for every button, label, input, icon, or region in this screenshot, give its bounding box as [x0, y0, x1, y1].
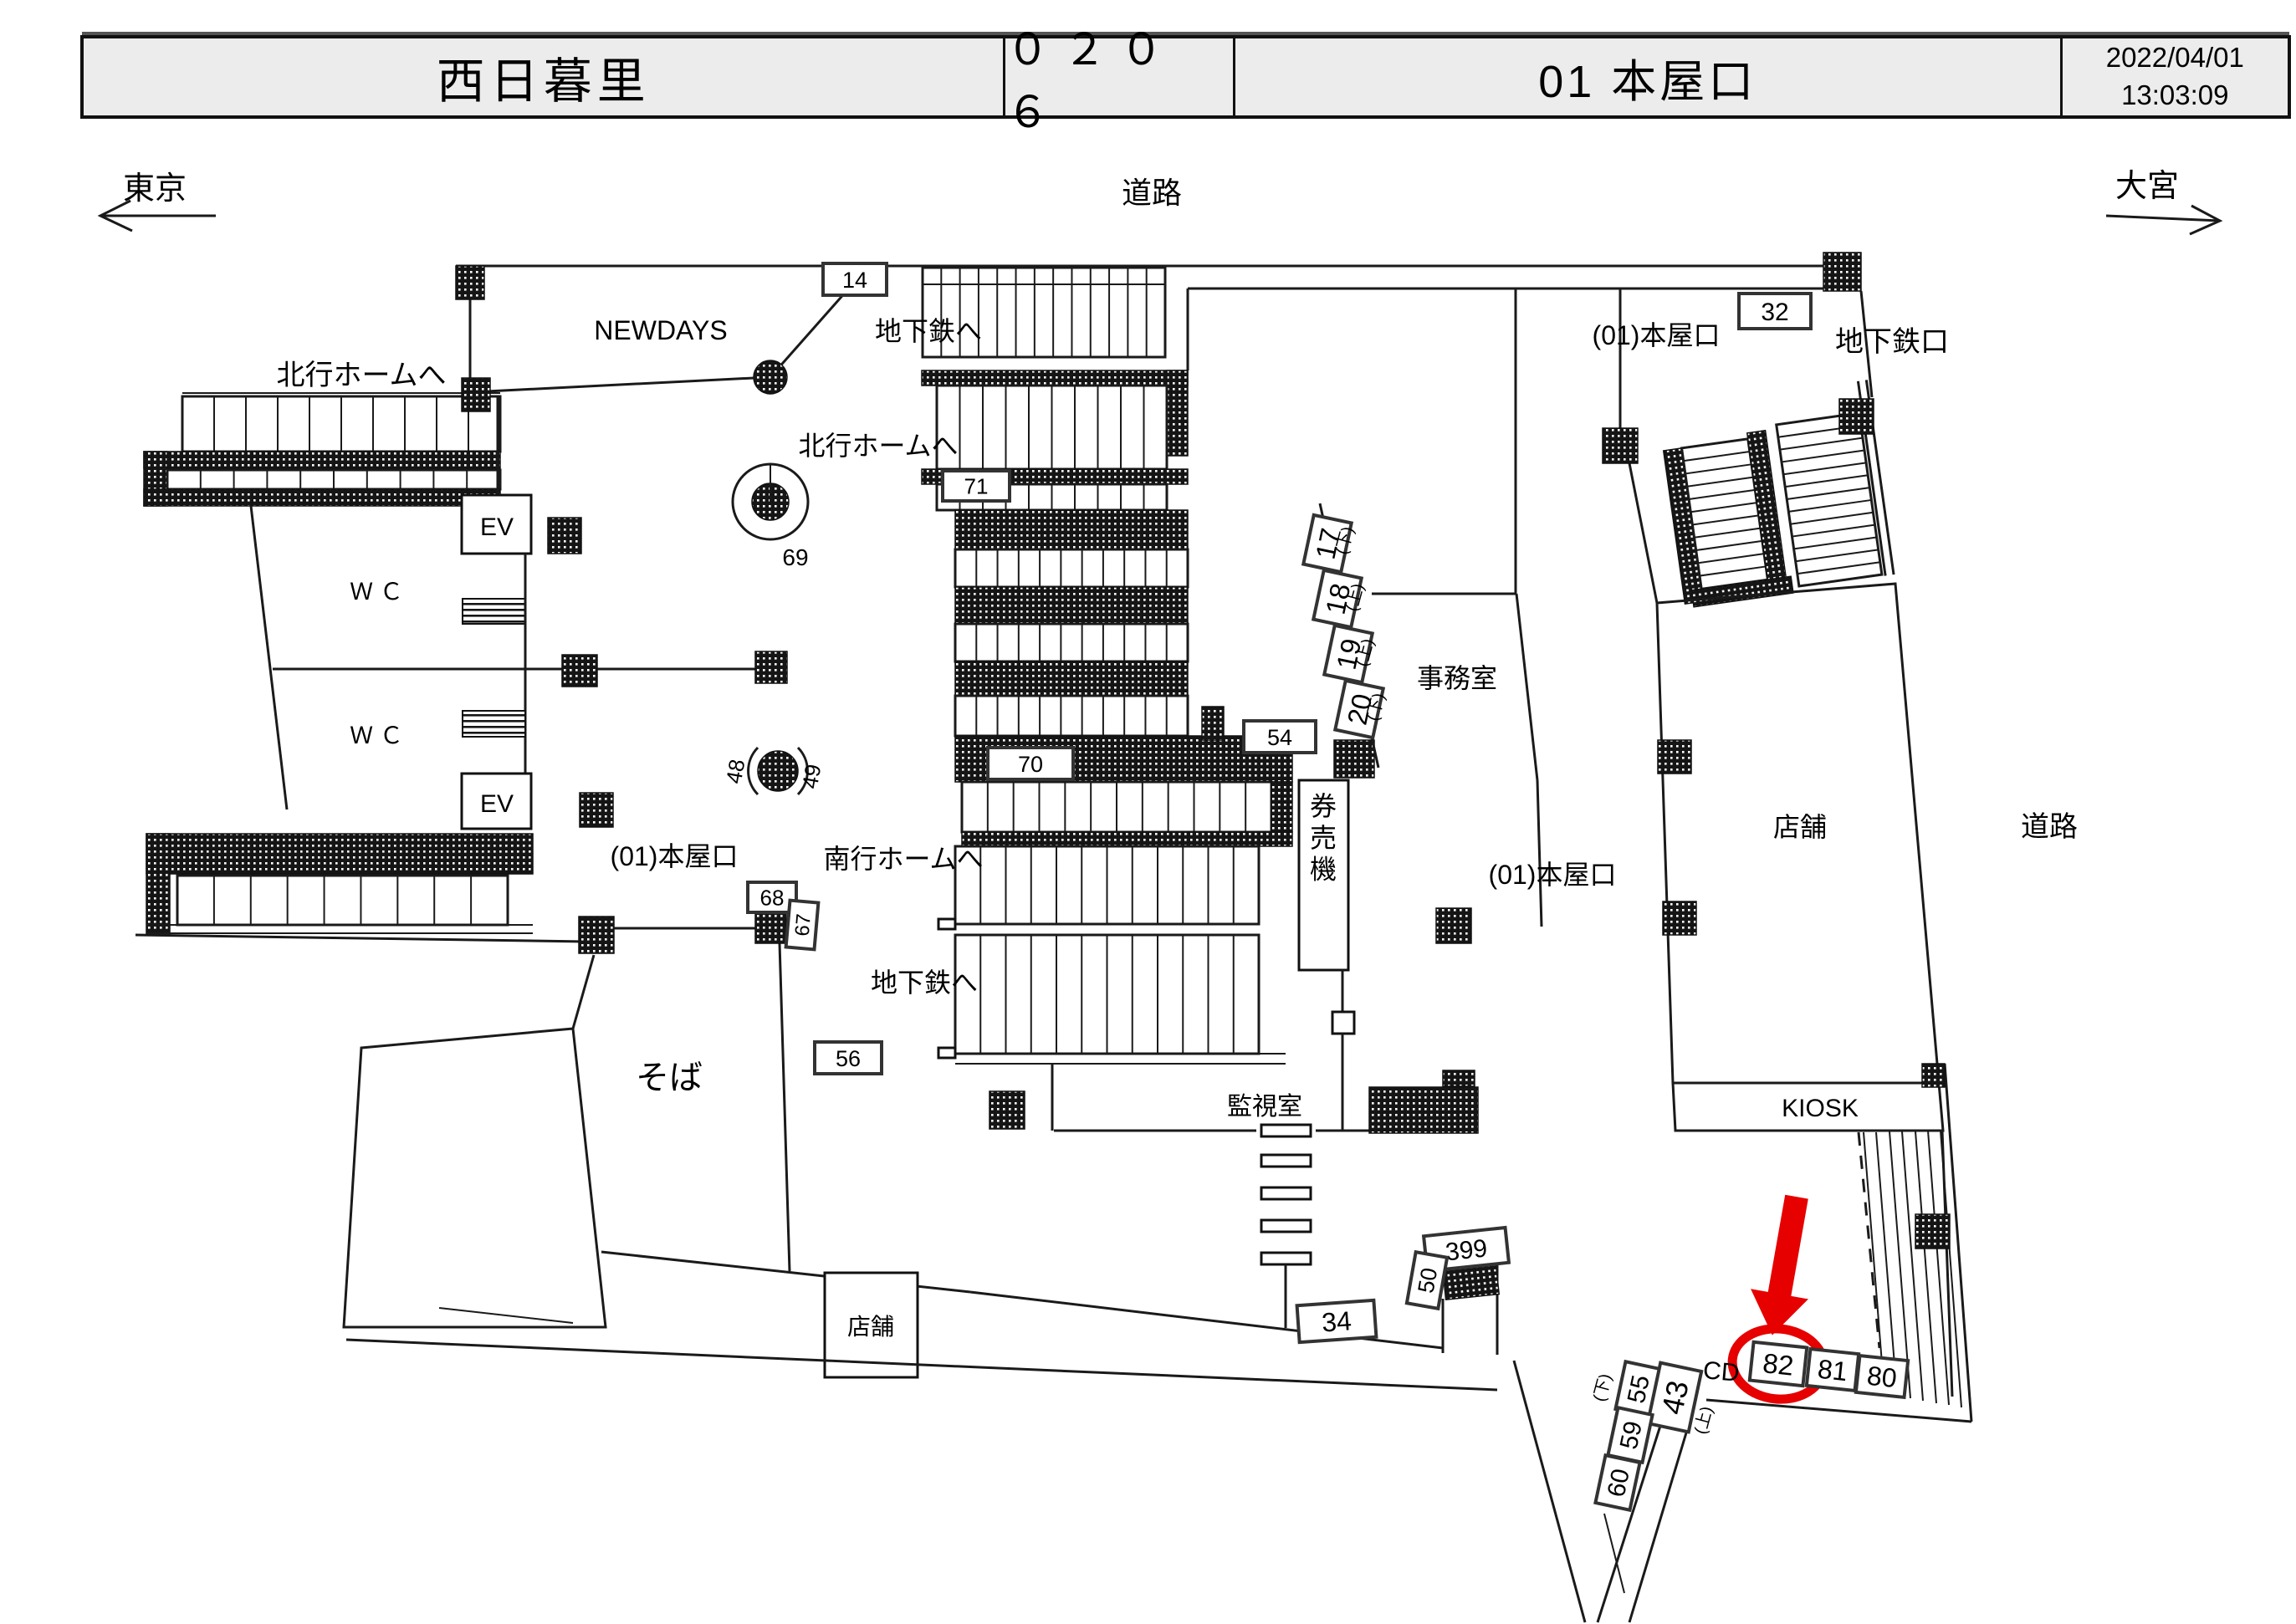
- map-label-honya-guchi-top: (01)本屋口: [1593, 320, 1721, 350]
- ad-box-70: 70: [988, 748, 1073, 779]
- map-label-soba: そば: [636, 1060, 703, 1096]
- map-label-tenpo-bottom: 店舗: [847, 1314, 894, 1340]
- date-text: 2022/04/01: [2106, 39, 2244, 77]
- floor-plan-drawing: 1432717054171819206867563995034828180554…: [0, 0, 2296, 1624]
- omiya-arrow-icon: [2106, 206, 2220, 234]
- ad-box-label-59: 59: [1615, 1419, 1648, 1453]
- ad-box-14: 14: [823, 263, 887, 295]
- station-map-page: 西日暮里 ０２０６ 01 本屋口 2022/04/01 13:03:09: [0, 0, 2296, 1624]
- concourse-boundary: [346, 1252, 1690, 1622]
- ad-box-label-81: 81: [1816, 1354, 1849, 1387]
- ad-box-82: 82: [1750, 1342, 1807, 1386]
- wc-ev-block: [251, 495, 755, 829]
- map-label-ann-55: (下): [1590, 1372, 1615, 1404]
- map-label-newdays: NEWDAYS: [594, 315, 727, 345]
- ad-box-54: 54: [1244, 721, 1316, 753]
- map-label-to-south-platform: 南行ホームへ: [823, 844, 983, 874]
- map-label-col-49: 49: [797, 763, 826, 791]
- ad-box-32: 32: [1739, 294, 1811, 329]
- column-69: [733, 464, 808, 539]
- ad-box-label-56: 56: [836, 1046, 861, 1071]
- map-label-to-subway-top: 地下鉄へ: [875, 316, 982, 346]
- map-label-road-right: 道路: [2021, 811, 2078, 843]
- ad-box-label-34: 34: [1321, 1305, 1353, 1337]
- round-column: [754, 360, 787, 394]
- ad-box-label-67: 67: [791, 913, 816, 937]
- map-label-jimushitsu: 事務室: [1417, 663, 1497, 693]
- ad-box-label-70: 70: [1018, 752, 1043, 777]
- ad-box-label-399: 399: [1445, 1234, 1489, 1266]
- ad-box-label-68: 68: [760, 885, 785, 910]
- ad-box-label-50: 50: [1413, 1266, 1442, 1295]
- map-label-road-top: 道路: [1122, 176, 1182, 210]
- map-label-to-north-platform-center: 北行ホームへ: [798, 431, 958, 461]
- northbound-stairs-left-lower: [136, 834, 594, 1029]
- highlight-arrow-icon: [1743, 1192, 1825, 1341]
- ad-box-60: 60: [1595, 1455, 1639, 1509]
- map-label-ev-upper: EV: [480, 513, 514, 541]
- map-label-cd: CD: [1702, 1356, 1741, 1387]
- gate-title: 01 本屋口: [1235, 38, 2063, 115]
- ad-box-50: 50: [1407, 1252, 1447, 1309]
- map-label-tenpo-right: 店舗: [1773, 812, 1827, 842]
- title-bar: 西日暮里 ０２０６ 01 本屋口 2022/04/01 13:03:09: [80, 35, 2291, 119]
- ad-box-label-82: 82: [1762, 1347, 1795, 1381]
- map-label-ev-lower: EV: [480, 790, 514, 818]
- map-label-honya-guchi-left: (01)本屋口: [611, 841, 739, 871]
- ad-box-label-14: 14: [842, 268, 867, 293]
- ad-box-label-60: 60: [1603, 1467, 1635, 1500]
- ad-box-label-55: 55: [1623, 1373, 1655, 1407]
- station-code: ０２０６: [1005, 38, 1235, 115]
- map-label-wc-upper: Ｗ Ｃ: [350, 579, 403, 605]
- ad-box-label-80: 80: [1865, 1361, 1898, 1394]
- northbound-stairs-left: [144, 393, 500, 506]
- map-label-to-north-platform-left: 北行ホームへ: [277, 360, 447, 391]
- map-label-chikatetsu-guchi: 地下鉄口: [1835, 326, 1949, 358]
- ad-box-label-43: 43: [1654, 1377, 1695, 1417]
- ad-box-67: 67: [786, 901, 819, 950]
- map-label-col-48: 48: [721, 758, 750, 786]
- ad-box-71: 71: [943, 471, 1010, 501]
- central-stair-complex: [922, 268, 1374, 1131]
- column-48-49: [749, 748, 808, 794]
- map-labels: 東京道路大宮北行ホームへNEWDAYS地下鉄へ北行ホームへＷ ＣＷ ＣEVEV6…: [123, 169, 2179, 1436]
- ad-box-81: 81: [1807, 1349, 1859, 1391]
- soba-area-walls: [344, 928, 790, 1327]
- ad-box-label-71: 71: [964, 473, 989, 498]
- time-text: 13:03:09: [2121, 77, 2228, 115]
- ad-box-label-32: 32: [1761, 299, 1788, 326]
- ad-box-59: 59: [1608, 1407, 1652, 1462]
- ad-box-34: 34: [1297, 1300, 1377, 1342]
- map-label-wc-lower: Ｗ Ｃ: [350, 723, 403, 748]
- map-label-dir-omiya: 大宮: [2115, 169, 2179, 204]
- map-label-kiosk: KIOSK: [1782, 1095, 1859, 1122]
- ad-box-label-54: 54: [1267, 725, 1292, 750]
- station-name: 西日暮里: [84, 38, 1005, 115]
- map-label-honya-guchi-right: (01)本屋口: [1489, 860, 1617, 890]
- datetime-box: 2022/04/01 13:03:09: [2063, 38, 2288, 115]
- map-label-kenbaiki: 券売機: [1310, 791, 1337, 885]
- map-label-dir-tokyo: 東京: [123, 171, 187, 207]
- ad-box-56: 56: [815, 1042, 882, 1074]
- map-label-kanshishitsu: 監視室: [1227, 1093, 1302, 1121]
- map-label-to-subway-lower: 地下鉄へ: [871, 968, 978, 998]
- map-label-col-69: 69: [782, 544, 808, 570]
- ad-box-80: 80: [1856, 1356, 1908, 1397]
